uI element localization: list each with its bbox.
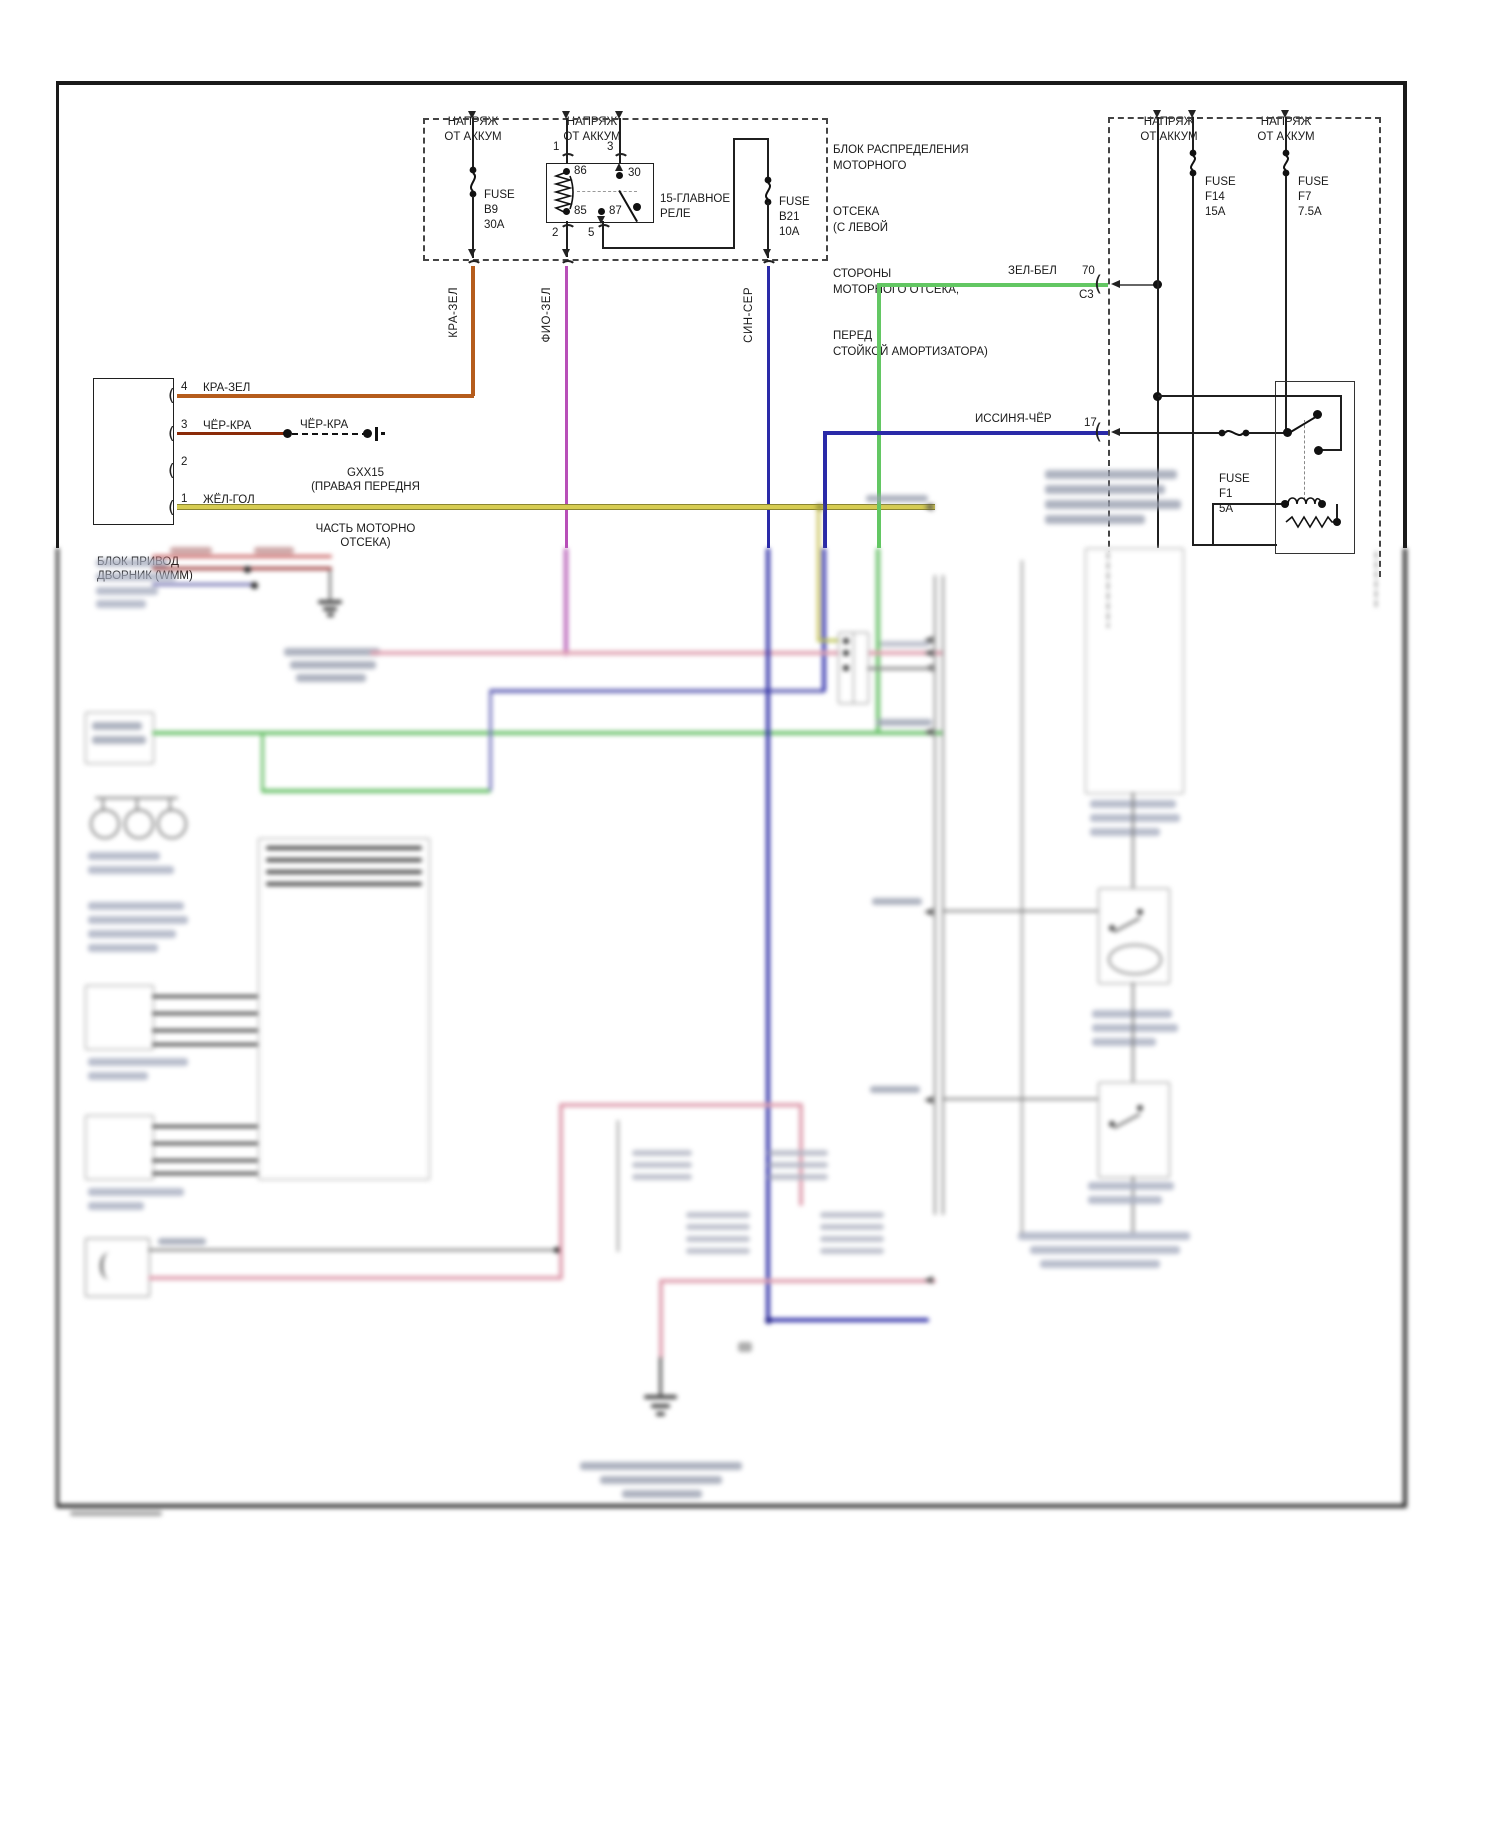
blur-shape — [158, 1238, 206, 1245]
blur-shape — [329, 570, 331, 600]
blur-shape — [843, 650, 849, 656]
blur-ellipse — [1108, 944, 1162, 975]
blur-shape — [169, 799, 171, 810]
blur-shape — [152, 1159, 258, 1162]
blur-shape — [686, 1236, 750, 1242]
blur-shape — [1132, 982, 1134, 1082]
blur-shape — [152, 1142, 258, 1145]
blur-shape — [152, 1012, 258, 1015]
blur-shape — [738, 1342, 752, 1352]
blur-connector-arrow — [924, 649, 933, 657]
blur-shape — [1021, 560, 1023, 1234]
blur-shape — [88, 1058, 188, 1066]
blur-shape — [820, 1224, 884, 1230]
blur-shape — [1045, 500, 1181, 509]
blur-shape — [820, 1236, 884, 1242]
blur-shape — [88, 1188, 184, 1196]
blur-shape — [152, 583, 254, 586]
blur-shape — [136, 799, 138, 810]
blur-shape — [152, 1043, 258, 1046]
blur-shape — [170, 547, 212, 554]
blur-shape — [876, 719, 932, 726]
blur-shape — [866, 495, 928, 502]
blur-connector-arrow — [924, 1096, 933, 1104]
blur-shape — [88, 944, 158, 952]
blur-shape — [323, 607, 337, 611]
blur-connector-arrow — [924, 503, 933, 511]
blur-shape — [284, 648, 380, 656]
blur-shape — [261, 731, 264, 791]
blur-shape — [659, 1279, 936, 1283]
blur-shape — [327, 613, 334, 617]
blur-shape — [266, 870, 422, 874]
blur-shape — [148, 1276, 562, 1280]
blur-shape — [92, 736, 146, 744]
blur-shape — [148, 1249, 558, 1251]
blur-shape — [843, 638, 849, 644]
blur-shape — [1092, 1038, 1156, 1046]
wiring-diagram-page: НАПРЯЖОТ АККУМ НАПРЯЖОТ АККУМ НАПРЯЖОТ А… — [0, 0, 1500, 1828]
blur-shape — [768, 1150, 828, 1156]
blur-shape — [96, 600, 146, 608]
blur-shape — [768, 1174, 828, 1180]
blur-shape — [1090, 828, 1160, 836]
blur-shape — [766, 548, 770, 1322]
blur-shape — [659, 1279, 663, 1359]
blur-shape — [85, 1115, 154, 1180]
blur-shape — [56, 548, 59, 1508]
blur-shape — [152, 731, 943, 735]
blur-shape — [70, 1511, 162, 1516]
blur-shape — [942, 575, 944, 1215]
blur-shape — [152, 567, 332, 570]
blur-shape — [1088, 1196, 1162, 1204]
blur-shape — [622, 1490, 702, 1498]
blur-shape — [1018, 1232, 1190, 1240]
blur-shape — [1045, 470, 1177, 479]
blur-shape — [88, 916, 188, 924]
blur-shape — [102, 799, 104, 810]
blur-shape — [96, 587, 158, 595]
blur-shape — [1137, 909, 1143, 915]
blur-shape — [96, 573, 176, 581]
blur-shape — [88, 1202, 144, 1210]
blur-shape — [1137, 1105, 1143, 1111]
blur-shape — [296, 674, 366, 682]
blur-connector-arrow — [924, 908, 933, 916]
blur-shape — [1375, 548, 1379, 610]
blur-shape — [820, 1212, 884, 1218]
blur-shape — [880, 641, 930, 647]
blur-shape — [1109, 925, 1115, 931]
blur-shape — [651, 1404, 670, 1408]
blur-shape — [152, 995, 258, 998]
blur-shape — [867, 667, 935, 670]
blur-shape — [244, 566, 251, 573]
blur-shape — [88, 902, 184, 910]
blur-motor-circle — [90, 809, 120, 839]
blur-shape — [872, 898, 922, 905]
blur-shape — [659, 1357, 662, 1397]
blur-shape — [817, 508, 820, 642]
blur-shape — [92, 722, 142, 730]
blur-shape — [266, 846, 422, 850]
blur-shape — [1088, 1182, 1174, 1190]
blur-shape — [258, 838, 430, 1180]
blur-shape — [820, 1248, 884, 1254]
blur-shape — [254, 547, 294, 554]
blur-shape — [686, 1224, 750, 1230]
blur-shape — [876, 548, 880, 734]
blur-shape — [768, 1162, 828, 1168]
blur-shape — [1107, 548, 1111, 628]
blur-shape — [1040, 1260, 1160, 1268]
blur-shape — [1045, 515, 1145, 524]
blur-shape — [686, 1248, 750, 1254]
blur-shape — [152, 1172, 258, 1175]
blur-shape — [632, 1162, 692, 1168]
blur-shape — [1098, 1082, 1170, 1178]
blur-box-d-glyph — [100, 1252, 119, 1280]
blur-shape — [85, 985, 154, 1050]
blur-shape — [489, 690, 492, 791]
blur-shape — [96, 559, 168, 567]
blur-shape — [88, 1072, 148, 1080]
blurred-region — [0, 0, 1500, 1828]
blur-shape — [152, 1125, 258, 1128]
blur-shape — [822, 548, 826, 692]
blur-shape — [266, 858, 422, 862]
blur-shape — [559, 1104, 563, 1280]
blur-shape — [559, 1103, 803, 1107]
blur-shape — [600, 1476, 722, 1484]
blur-shape — [1132, 792, 1134, 888]
blur-shape — [580, 1462, 742, 1470]
blur-shape — [152, 1029, 258, 1032]
blur-shape — [95, 797, 178, 799]
blur-shape — [1109, 1121, 1115, 1127]
blur-shape — [1030, 1246, 1180, 1254]
blur-shape — [1085, 548, 1184, 794]
blur-shape — [843, 665, 849, 671]
blur-shape — [1045, 485, 1165, 494]
blur-shape — [1403, 548, 1407, 1508]
blur-shape — [88, 930, 176, 938]
blur-shape — [1092, 1024, 1178, 1032]
blur-shape — [1090, 814, 1180, 822]
blur-shape — [318, 600, 342, 604]
blur-shape — [88, 866, 174, 874]
blur-shape — [56, 1504, 1407, 1508]
blur-connector-arrow — [924, 1276, 933, 1284]
blur-shape — [564, 548, 568, 656]
blur-shape — [767, 1318, 929, 1322]
blur-shape — [686, 1212, 750, 1218]
blur-shape — [765, 1317, 772, 1324]
blur-shape — [644, 1395, 677, 1399]
blur-shape — [942, 1098, 1098, 1100]
blur-shape — [942, 910, 1098, 912]
blur-shape — [489, 689, 825, 693]
blur-motor-circle — [124, 809, 154, 839]
blur-shape — [152, 555, 332, 558]
blur-connector-arrow — [924, 728, 933, 736]
blur-shape — [617, 1120, 619, 1252]
blur-shape — [251, 582, 258, 589]
blur-shape — [656, 1412, 665, 1416]
blur-motor-circle — [157, 809, 187, 839]
blur-shape — [632, 1174, 692, 1180]
blur-shape — [934, 575, 936, 1215]
blur-shape — [870, 1086, 920, 1093]
blur-shape — [290, 661, 376, 669]
blur-shape — [261, 789, 491, 793]
blur-shape — [266, 882, 422, 886]
blur-shape — [88, 852, 160, 860]
blur-shape — [632, 1150, 692, 1156]
